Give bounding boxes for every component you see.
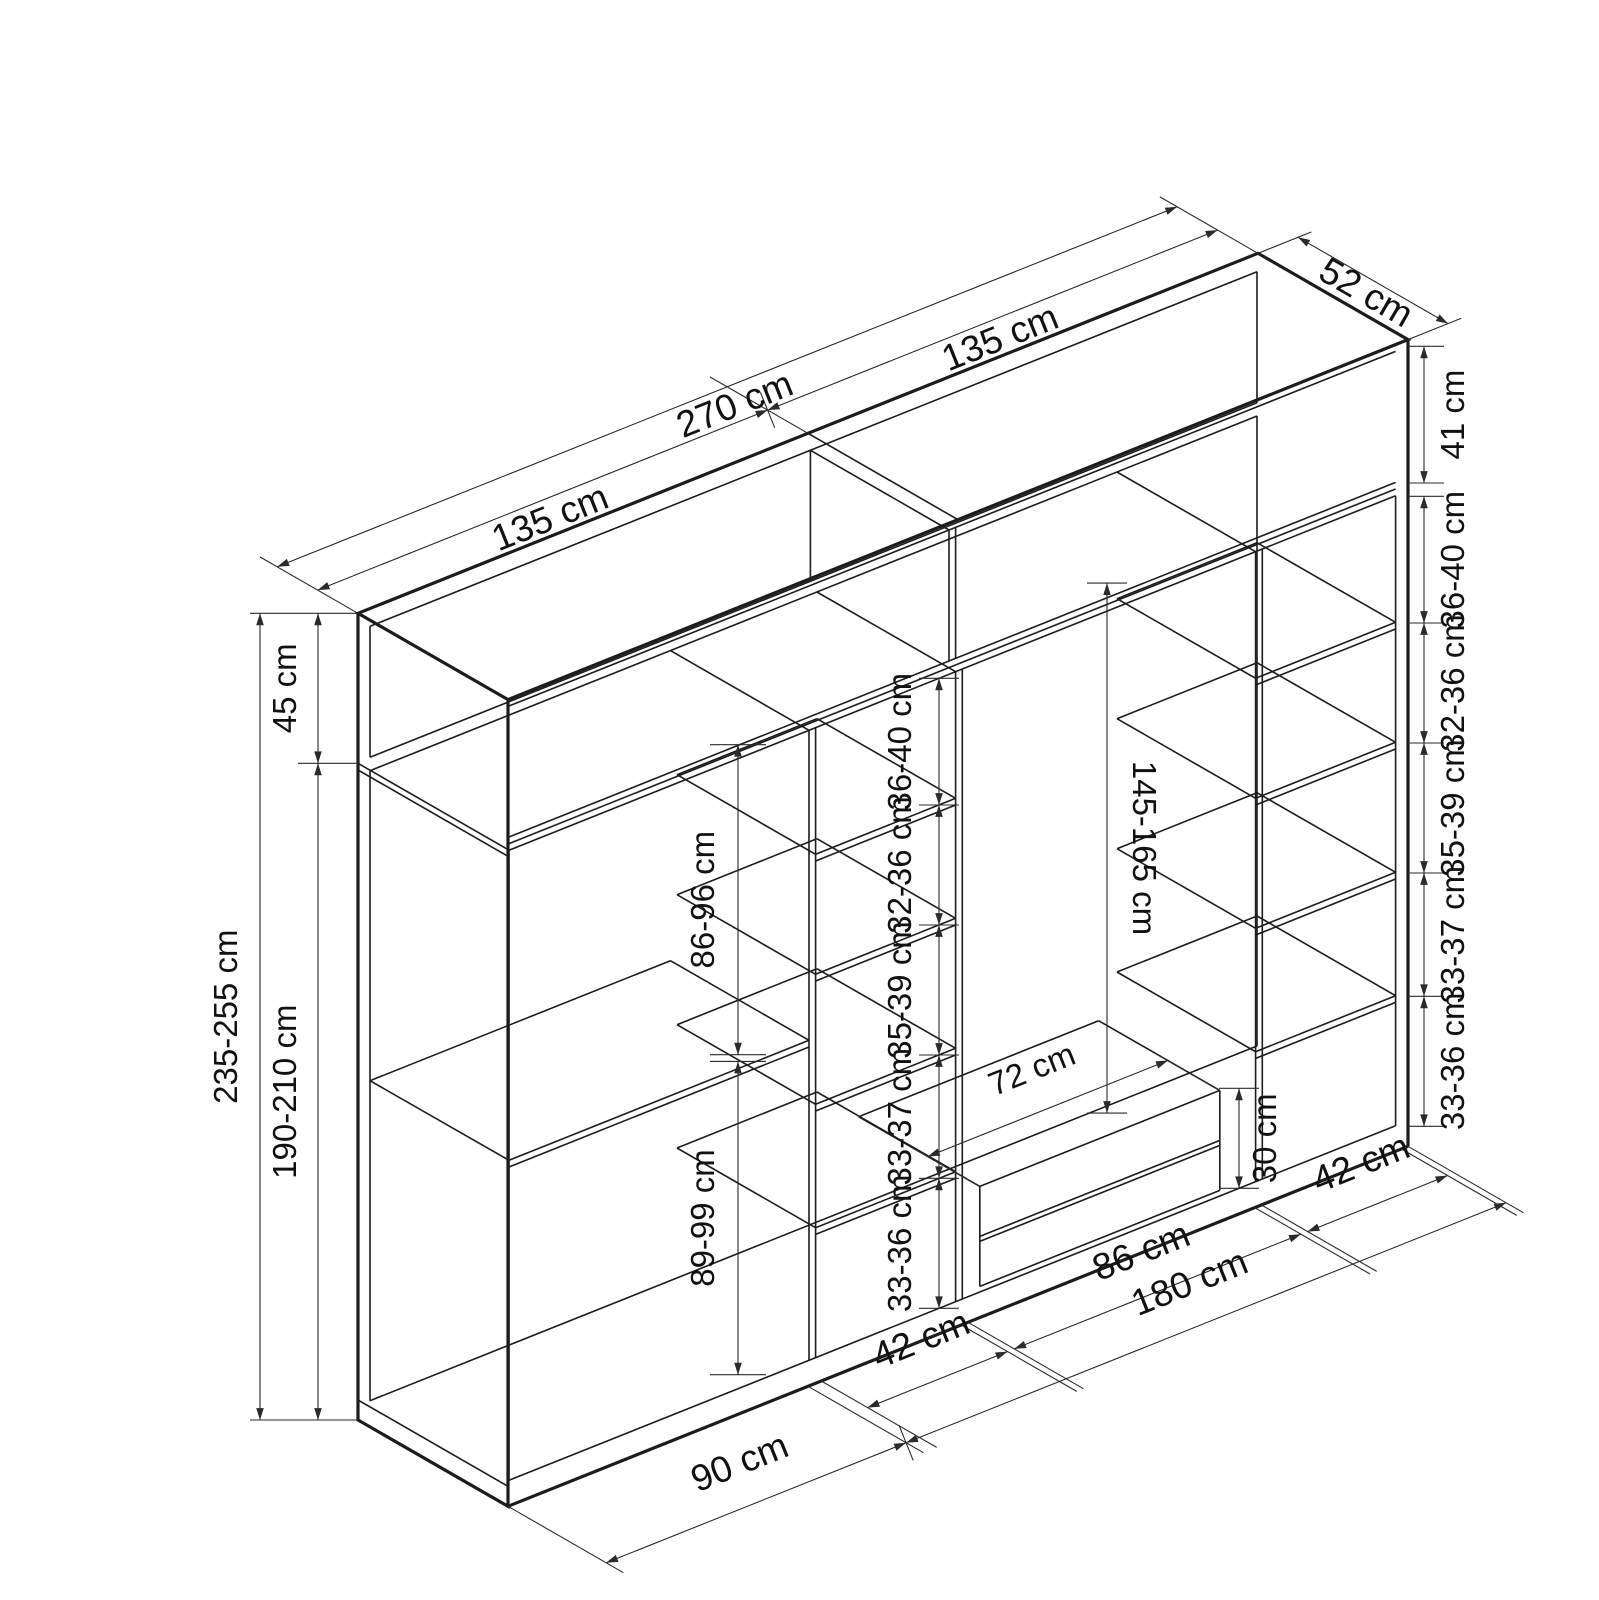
diagram-canvas: 270 cm 135 cm 135 cm 52 cm 45 cm 190-210… [0, 0, 1599, 1600]
background [0, 0, 1599, 1600]
dim-right-shelf-3: 35-39 cm [1434, 739, 1471, 877]
dim-hanging-height: 145-165 cm [1126, 761, 1163, 935]
dim-right-shelf-2: 32-36 cm [1434, 614, 1471, 752]
dim-total-height: 235-255 cm [207, 930, 244, 1104]
dim-right-shelf-1: 36-40 cm [1434, 491, 1471, 629]
dim-right-shelf-5: 33-36 cm [1434, 993, 1471, 1131]
dim-right-shelf-top: 41 cm [1434, 370, 1471, 460]
dim-top-box-height: 45 cm [266, 643, 303, 733]
dim-middle-shelf-3: 35-39 cm [881, 921, 918, 1059]
dim-left-lower-compartment: 89-99 cm [684, 1149, 721, 1287]
dim-body-height: 190-210 cm [266, 1005, 303, 1179]
dim-middle-shelf-5: 33-36 cm [881, 1175, 918, 1313]
wardrobe-technical-drawing: 270 cm 135 cm 135 cm 52 cm 45 cm 190-210… [0, 0, 1599, 1600]
dim-drawer-unit-height: 30 cm [1246, 1093, 1283, 1183]
dim-middle-shelf-4: 33-37 cm [881, 1048, 918, 1186]
dim-middle-shelf-1: 36-40 cm [881, 673, 918, 811]
dim-right-shelf-4: 33-37 cm [1434, 866, 1471, 1004]
dim-left-upper-compartment: 86-96 cm [684, 831, 721, 969]
dim-middle-shelf-2: 32-36 cm [881, 796, 918, 934]
